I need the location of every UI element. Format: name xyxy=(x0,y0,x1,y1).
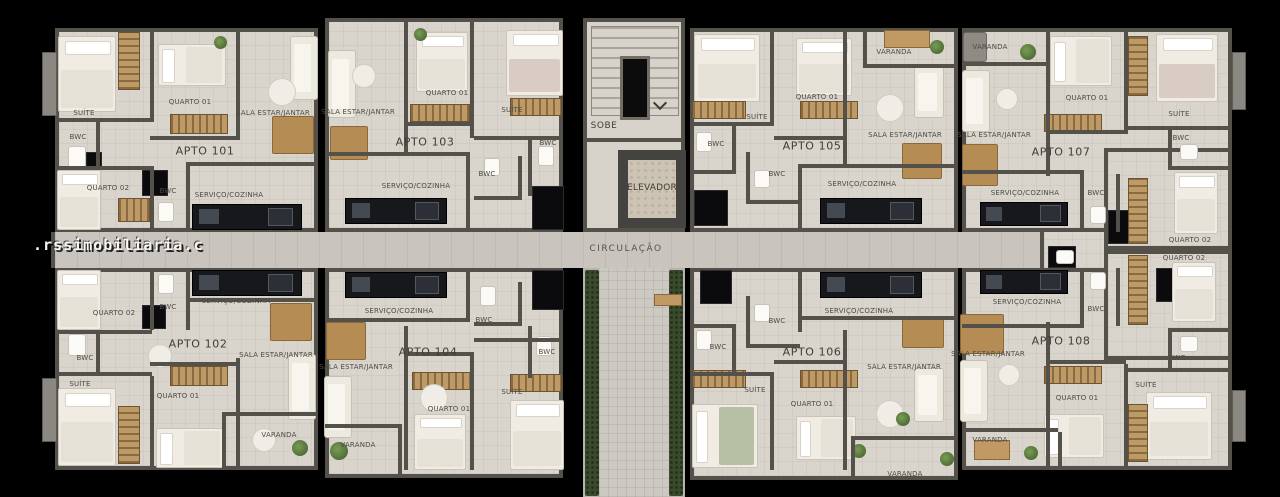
bed xyxy=(58,388,116,466)
wall xyxy=(518,156,522,200)
room-label: QUARTO 01 xyxy=(796,93,839,101)
wardrobe xyxy=(800,370,858,388)
apartment-label: APTO 106 xyxy=(783,346,842,359)
wardrobe xyxy=(1128,255,1148,325)
room-label: VARANDA xyxy=(972,43,1007,51)
room-label: SALA ESTAR/JANTAR xyxy=(319,363,393,371)
plant xyxy=(1024,446,1038,460)
room-label: QUARTO 01 xyxy=(1066,94,1109,102)
room-label: VARANDA xyxy=(972,436,1007,444)
dining-table xyxy=(902,143,942,179)
bathroom-fixture xyxy=(1090,272,1106,290)
room-label: SERVIÇO/COZINHA xyxy=(382,182,451,190)
room-label: VARANDA xyxy=(887,470,922,478)
dining-table xyxy=(960,314,1004,354)
wood-bench xyxy=(654,294,682,306)
wall xyxy=(96,330,100,376)
room-label: SALA ESTAR/JANTAR xyxy=(867,363,941,371)
wall xyxy=(863,64,958,68)
utility-box xyxy=(532,186,564,230)
wall xyxy=(1116,268,1120,326)
utility-box xyxy=(700,270,732,304)
ledge xyxy=(42,52,57,116)
plant xyxy=(214,36,227,49)
dining-table xyxy=(272,116,314,154)
wall xyxy=(1128,368,1232,372)
wardrobe xyxy=(170,114,228,134)
rug xyxy=(352,64,376,88)
rug xyxy=(998,364,1020,386)
sofa xyxy=(962,70,990,132)
wall xyxy=(236,28,240,138)
bed xyxy=(1156,34,1218,102)
room-label: SERVIÇO/COZINHA xyxy=(991,189,1060,197)
room-label: QUARTO 02 xyxy=(93,309,136,317)
room-label: QUARTO 01 xyxy=(1056,394,1099,402)
wall xyxy=(851,436,958,440)
floor-plan: SOBE ELEVADOR CIRCULAÇÃO .rssimobiliaria… xyxy=(0,0,1280,497)
bed xyxy=(796,416,856,460)
wall xyxy=(690,372,774,376)
wall xyxy=(1080,268,1084,328)
wall xyxy=(325,424,402,428)
wall xyxy=(851,436,855,480)
apartment-label: APTO 102 xyxy=(169,338,228,351)
wall xyxy=(1116,174,1120,232)
room-label: VARANDA xyxy=(876,48,911,56)
wall xyxy=(55,118,152,122)
bed xyxy=(510,400,564,470)
bed xyxy=(506,30,563,96)
utility-box xyxy=(532,270,564,310)
bathroom-fixture xyxy=(538,146,554,166)
wall xyxy=(1124,364,1128,470)
dining-table xyxy=(326,322,366,360)
bathroom-fixture xyxy=(68,334,86,356)
dining-table xyxy=(902,316,944,348)
wall xyxy=(798,164,958,168)
rug xyxy=(876,94,904,122)
kitchen-counter xyxy=(820,198,922,224)
room-label: BWC xyxy=(539,348,556,356)
sofa xyxy=(914,368,944,422)
wardrobe xyxy=(118,32,140,90)
elevator-label: ELEVADOR xyxy=(627,183,677,193)
wall xyxy=(222,412,318,416)
wall xyxy=(518,282,522,326)
kitchen-counter xyxy=(345,272,447,298)
kitchen-counter xyxy=(345,198,447,224)
wall xyxy=(325,318,470,322)
wall xyxy=(55,372,152,376)
wall xyxy=(774,360,846,364)
room-label: SALA ESTAR/JANTAR xyxy=(236,109,310,117)
bed xyxy=(1172,262,1216,322)
room-label: SALA ESTAR/JANTAR xyxy=(868,131,942,139)
wall xyxy=(466,268,470,322)
room-label: SERVIÇO/COZINHA xyxy=(825,307,894,315)
room-label: SERVIÇO/COZINHA xyxy=(993,298,1062,306)
room-label: BWC xyxy=(70,133,87,141)
wall xyxy=(732,326,736,372)
room-label: BWC xyxy=(1088,189,1105,197)
wall xyxy=(1048,130,1126,134)
plan-canvas: SOBE ELEVADOR CIRCULAÇÃO .rssimobiliaria… xyxy=(0,0,1280,497)
wardrobe xyxy=(410,104,470,122)
wardrobe xyxy=(692,101,746,119)
rug xyxy=(996,88,1018,110)
wall xyxy=(186,166,190,232)
rug xyxy=(268,78,296,106)
room-label: SERVIÇO/COZINHA xyxy=(828,180,897,188)
room-label: VARANDA xyxy=(340,441,375,449)
wall xyxy=(690,170,736,174)
wall xyxy=(150,268,154,330)
room-label: BWC xyxy=(540,139,557,147)
room-label: BWC xyxy=(708,140,725,148)
room-label: BWC xyxy=(769,170,786,178)
wall xyxy=(770,372,774,470)
sofa xyxy=(960,360,988,422)
room-label: BWC xyxy=(476,316,493,324)
wall xyxy=(404,18,408,152)
apartment-label: APTO 105 xyxy=(783,140,842,153)
bed xyxy=(416,32,468,92)
ledge xyxy=(1232,52,1246,110)
corridor-label: CIRCULAÇÃO xyxy=(589,244,662,254)
utility-box xyxy=(694,190,728,226)
bathroom-fixture xyxy=(158,274,174,294)
wall xyxy=(690,324,736,328)
bed xyxy=(1174,172,1218,234)
wardrobe xyxy=(1128,36,1148,96)
sofa xyxy=(914,66,944,118)
wall xyxy=(1128,126,1232,130)
wall xyxy=(398,424,402,478)
plant xyxy=(414,28,427,41)
room-label: SUÍTE xyxy=(501,106,522,114)
sofa xyxy=(288,354,316,420)
wall xyxy=(470,356,474,470)
room-label: SERVIÇO/COZINHA xyxy=(195,191,264,199)
room-label: QUARTO 01 xyxy=(428,405,471,413)
wall xyxy=(150,136,240,140)
bed xyxy=(57,270,101,330)
wall xyxy=(96,118,100,170)
room-label: SUÍTE xyxy=(73,109,94,117)
wall xyxy=(1168,330,1172,372)
room-label: BWC xyxy=(160,187,177,195)
wall xyxy=(528,326,532,378)
wall xyxy=(746,296,750,346)
bed xyxy=(58,36,116,112)
wall xyxy=(55,330,152,334)
wall xyxy=(474,196,522,200)
wall xyxy=(222,412,226,470)
wardrobe xyxy=(1044,366,1102,384)
kitchen-counter xyxy=(980,202,1068,226)
wall xyxy=(798,268,802,332)
kitchen-counter xyxy=(192,270,302,296)
wall xyxy=(150,28,154,122)
stairs-label: SOBE xyxy=(591,121,618,131)
wardrobe xyxy=(800,101,858,119)
room-label: QUARTO 01 xyxy=(157,392,200,400)
apartment-label: APTO 103 xyxy=(396,136,455,149)
bed xyxy=(414,414,466,470)
apartment-label: APTO 107 xyxy=(1032,146,1091,159)
room-label: BWC xyxy=(1169,354,1186,362)
room-label: QUARTO 02 xyxy=(87,184,130,192)
room-label: QUARTO 02 xyxy=(1163,254,1206,262)
wood-bench xyxy=(884,30,930,48)
wall xyxy=(770,28,774,126)
plant xyxy=(940,452,954,466)
room-label: BWC xyxy=(1173,134,1190,142)
bathroom-fixture xyxy=(68,146,86,168)
apartment-label: APTO 104 xyxy=(399,346,458,359)
wall xyxy=(962,62,1050,66)
wardrobe xyxy=(118,406,140,464)
apartment-label: APTO 108 xyxy=(1032,335,1091,348)
wall xyxy=(150,376,154,470)
room-label: BWC xyxy=(160,303,177,311)
apartment-label: APTO 101 xyxy=(176,145,235,158)
wall xyxy=(408,122,474,126)
bathroom-fixture xyxy=(1090,206,1106,224)
bathroom-fixture xyxy=(1180,336,1198,352)
bed xyxy=(694,34,760,102)
room-label: SUÍTE xyxy=(69,380,90,388)
wall xyxy=(150,362,240,366)
plant xyxy=(930,40,944,54)
dining-table xyxy=(270,303,312,341)
wall xyxy=(466,156,470,232)
room-label: BWC xyxy=(479,170,496,178)
wall xyxy=(843,330,847,470)
wall xyxy=(798,316,958,320)
room-label: BWC xyxy=(710,343,727,351)
room-label: VARANDA xyxy=(261,431,296,439)
wardrobe xyxy=(1128,404,1148,462)
sofa xyxy=(324,376,352,438)
ledge xyxy=(42,378,57,442)
ledge xyxy=(1232,390,1246,442)
room-label: QUARTO 01 xyxy=(791,400,834,408)
bed xyxy=(158,44,226,86)
room-label: SALA ESTAR/JANTAR xyxy=(321,108,395,116)
wall xyxy=(843,28,847,168)
wall xyxy=(150,166,154,232)
wall xyxy=(1168,126,1172,168)
wall xyxy=(1124,28,1128,134)
room-label: QUARTO 01 xyxy=(426,89,469,97)
wall xyxy=(863,28,867,68)
plant xyxy=(292,440,308,456)
dining-table xyxy=(962,144,998,186)
wall xyxy=(962,324,1084,328)
room-label: SUÍTE xyxy=(1168,110,1189,118)
bed xyxy=(1050,36,1112,86)
room-label: BWC xyxy=(769,317,786,325)
wall xyxy=(186,162,318,166)
wall xyxy=(962,170,1084,174)
bed xyxy=(57,170,101,230)
wall xyxy=(474,338,563,342)
kitchen-counter xyxy=(980,270,1068,294)
bed xyxy=(1146,392,1212,460)
bathroom-fixture xyxy=(158,202,174,222)
wall xyxy=(1168,166,1232,170)
room-label: BWC xyxy=(77,354,94,362)
bed xyxy=(1044,414,1104,458)
wall xyxy=(746,200,800,204)
wall xyxy=(528,136,532,196)
hedge xyxy=(585,270,599,496)
wall xyxy=(55,166,152,170)
wall xyxy=(1168,328,1232,332)
room-label: SERVIÇO/COZINHA xyxy=(365,307,434,315)
bed xyxy=(692,404,758,468)
room-label: SERVIÇO/COZINHA xyxy=(202,297,271,305)
room-label: SUÍTE xyxy=(746,113,767,121)
room-label: SUÍTE xyxy=(744,386,765,394)
plant xyxy=(1020,44,1036,60)
wall xyxy=(470,18,474,138)
wall xyxy=(746,152,750,202)
room-label: SALA ESTAR/JANTAR xyxy=(239,351,313,359)
room-label: SUÍTE xyxy=(501,388,522,396)
wall xyxy=(1058,432,1062,470)
wardrobe xyxy=(170,366,228,386)
wall xyxy=(962,428,1058,432)
room-label: SALA ESTAR/JANTAR xyxy=(951,350,1025,358)
room-label: SUÍTE xyxy=(1135,381,1156,389)
bathroom-fixture xyxy=(480,286,496,306)
wall xyxy=(1080,170,1084,232)
stair-core xyxy=(620,56,650,120)
room-label: QUARTO 01 xyxy=(169,98,212,106)
room-label: BWC xyxy=(1088,305,1105,313)
bed xyxy=(156,428,224,468)
plant xyxy=(896,412,910,426)
wall xyxy=(732,126,736,174)
wall xyxy=(1048,360,1126,364)
kitchen-counter xyxy=(192,204,302,230)
room-label: SALA ESTAR/JANTAR xyxy=(957,131,1031,139)
watermark: .rssimobiliaria.c xyxy=(33,236,204,254)
wardrobe xyxy=(118,198,150,222)
room-label: QUARTO 02 xyxy=(1169,236,1212,244)
kitchen-counter xyxy=(820,272,922,298)
wardrobe xyxy=(1128,178,1148,244)
bathroom-fixture xyxy=(1180,144,1198,160)
wall xyxy=(325,152,470,156)
bathroom-fixture xyxy=(1056,250,1074,264)
